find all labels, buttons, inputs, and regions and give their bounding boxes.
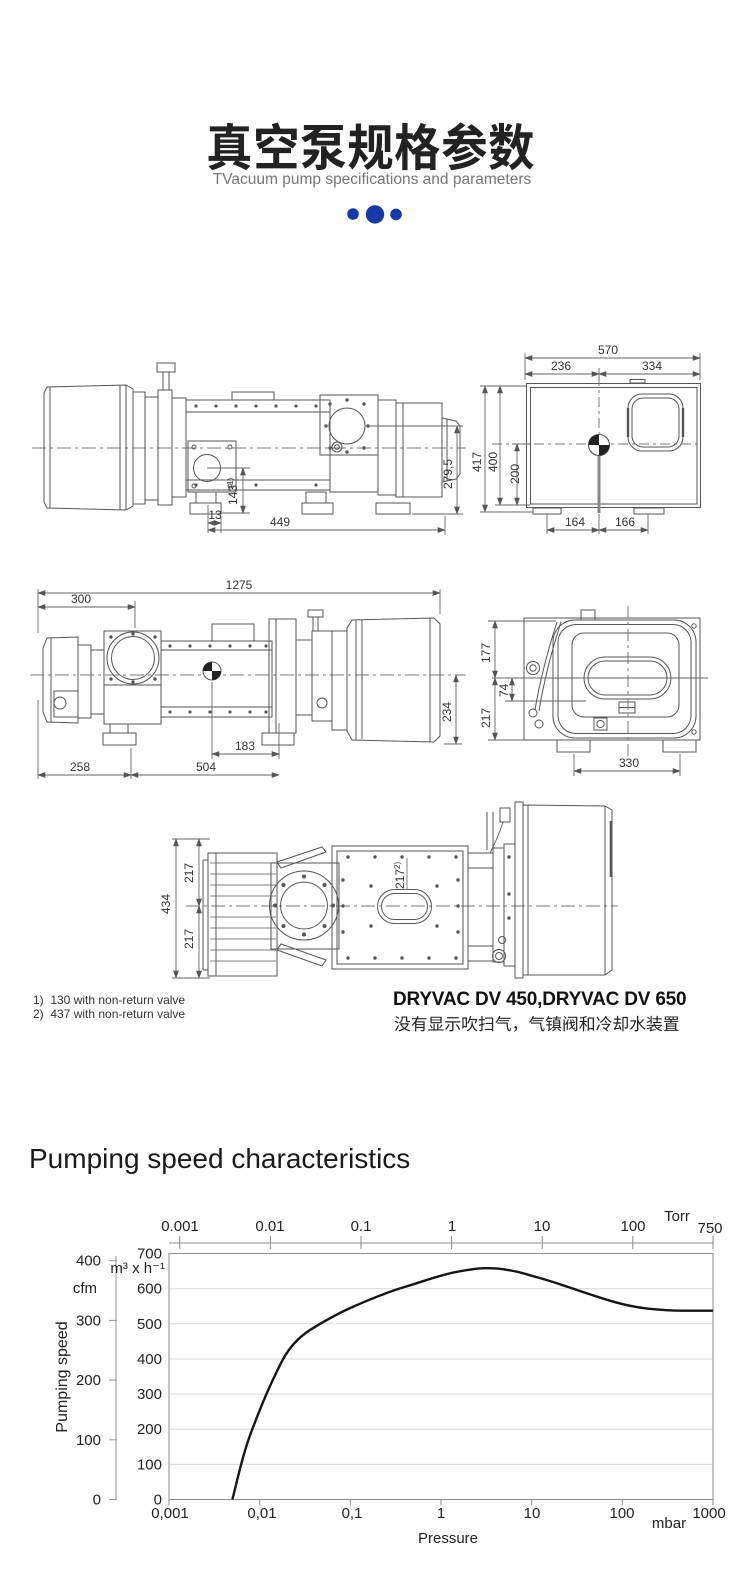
svg-text:750: 750: [697, 1220, 722, 1237]
svg-text:0.001: 0.001: [161, 1218, 199, 1235]
svg-text:258: 258: [70, 760, 90, 774]
svg-text:200: 200: [76, 1372, 101, 1389]
svg-text:600: 600: [137, 1281, 162, 1298]
svg-text:1000: 1000: [692, 1505, 725, 1522]
svg-text:177: 177: [479, 643, 493, 663]
svg-text:164: 164: [565, 515, 585, 529]
svg-text:Torr: Torr: [664, 1208, 690, 1225]
svg-text:217: 217: [182, 863, 196, 883]
svg-text:330: 330: [619, 756, 639, 770]
svg-text:417: 417: [470, 452, 484, 472]
svg-text:300: 300: [76, 1312, 101, 1329]
svg-text:Pressure: Pressure: [418, 1530, 478, 1547]
svg-text:0,01: 0,01: [247, 1505, 276, 1522]
svg-text:100: 100: [609, 1505, 634, 1522]
svg-text:1431): 1431): [226, 478, 240, 505]
svg-text:m³ x h⁻¹: m³ x h⁻¹: [110, 1260, 165, 1277]
svg-text:217: 217: [479, 708, 493, 728]
svg-text:500: 500: [137, 1316, 162, 1333]
svg-text:570: 570: [598, 343, 618, 357]
svg-text:0: 0: [93, 1492, 101, 1509]
svg-text:0.01: 0.01: [255, 1218, 284, 1235]
svg-text:0,1: 0,1: [342, 1505, 363, 1522]
svg-text:183: 183: [235, 739, 255, 753]
svg-text:1: 1: [448, 1218, 456, 1235]
svg-text:cfm: cfm: [73, 1280, 97, 1297]
svg-text:234: 234: [440, 702, 454, 722]
svg-text:2172): 2172): [393, 862, 407, 889]
svg-text:200: 200: [137, 1421, 162, 1438]
svg-text:1: 1: [437, 1505, 445, 1522]
svg-text:434: 434: [159, 894, 173, 914]
svg-text:236: 236: [551, 359, 571, 373]
svg-text:Pumping speed: Pumping speed: [54, 1321, 71, 1432]
svg-text:334: 334: [642, 359, 662, 373]
svg-text:449: 449: [270, 515, 290, 529]
svg-text:10: 10: [524, 1505, 541, 1522]
svg-text:217: 217: [182, 929, 196, 949]
svg-text:74: 74: [497, 683, 511, 697]
svg-text:100: 100: [137, 1456, 162, 1473]
svg-text:100: 100: [76, 1432, 101, 1449]
svg-text:1275: 1275: [226, 578, 253, 592]
svg-text:100: 100: [620, 1218, 645, 1235]
svg-text:279,5: 279,5: [441, 459, 455, 489]
svg-text:13: 13: [208, 508, 222, 522]
svg-text:mbar: mbar: [652, 1515, 686, 1532]
svg-text:400: 400: [137, 1351, 162, 1368]
svg-text:400: 400: [76, 1253, 101, 1270]
svg-text:400: 400: [486, 452, 500, 472]
svg-text:0.1: 0.1: [351, 1218, 372, 1235]
svg-text:200: 200: [508, 464, 522, 484]
svg-text:300: 300: [71, 592, 91, 606]
svg-text:504: 504: [196, 760, 216, 774]
svg-text:0: 0: [154, 1492, 162, 1509]
svg-text:10: 10: [534, 1218, 551, 1235]
svg-text:166: 166: [615, 515, 635, 529]
svg-text:300: 300: [137, 1386, 162, 1403]
